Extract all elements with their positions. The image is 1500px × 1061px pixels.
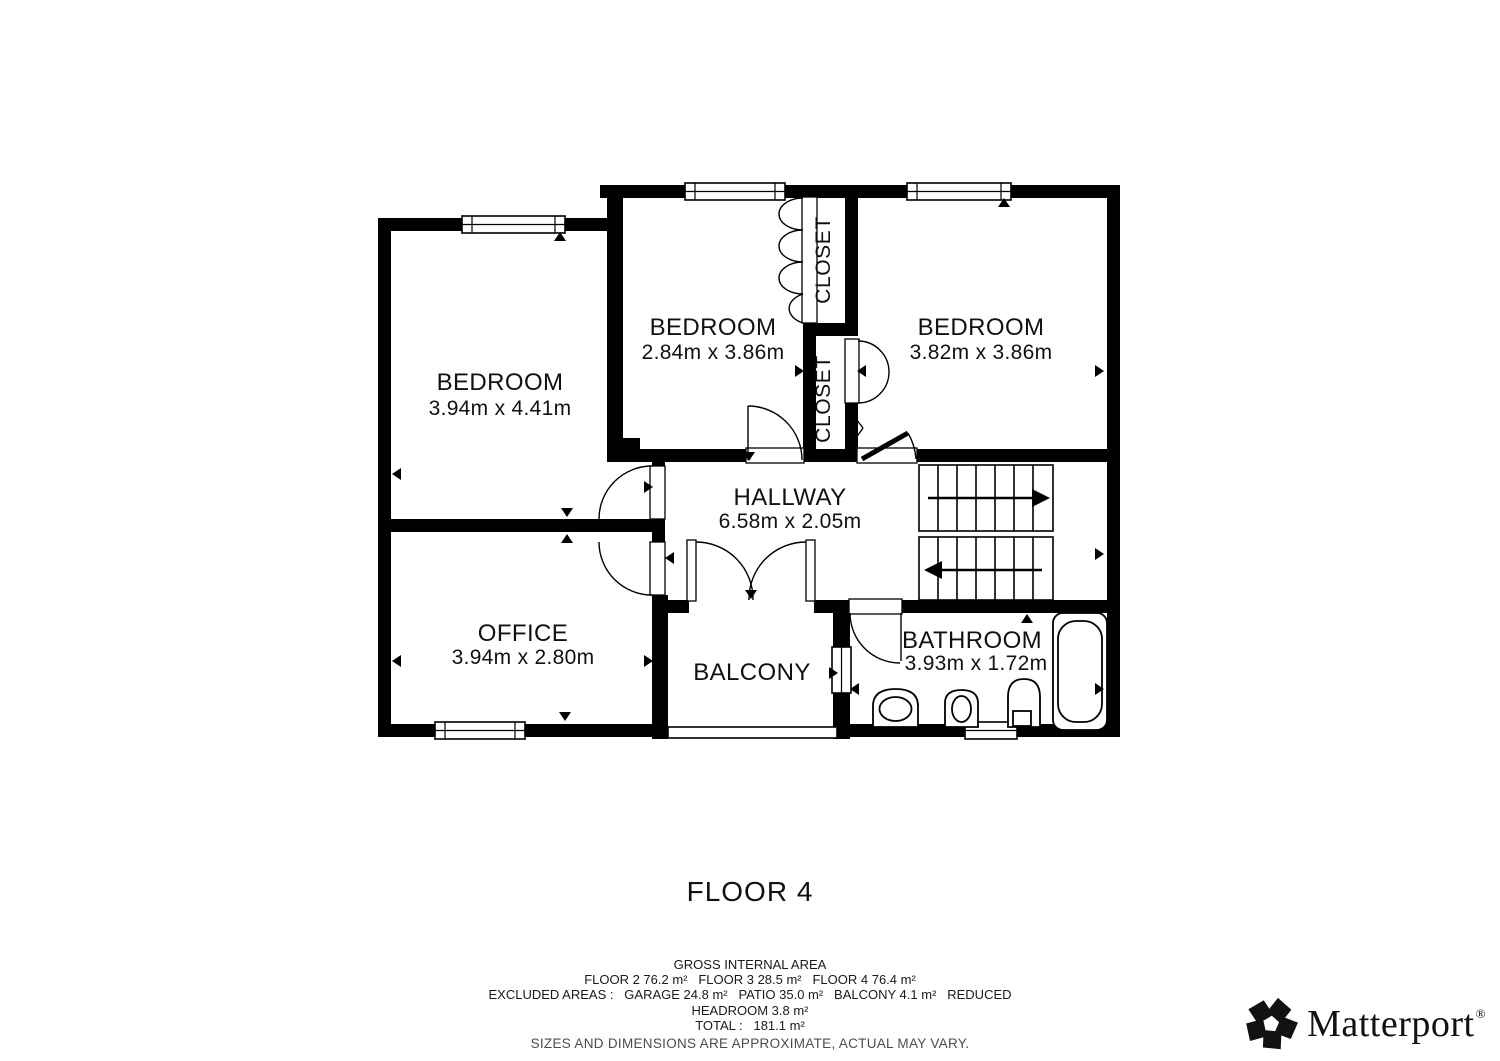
window xyxy=(907,183,1011,200)
room-dimensions: 3.82m x 3.86m xyxy=(910,341,1053,364)
closet-label: CLOSET xyxy=(812,216,835,304)
registered-trademark-symbol: ® xyxy=(1476,1006,1486,1021)
matterport-logo-icon xyxy=(1243,996,1299,1052)
floor-title: FLOOR 4 xyxy=(0,876,1500,908)
sink-icon xyxy=(945,690,978,727)
door xyxy=(849,599,902,663)
room-name: OFFICE xyxy=(478,620,568,647)
room-hallway: HALLWAY 6.58m x 2.05m xyxy=(719,484,862,533)
room-bedroom-right: BEDROOM 3.82m x 3.86m xyxy=(910,314,1053,364)
door xyxy=(599,542,665,595)
window xyxy=(462,216,565,233)
doors xyxy=(599,197,917,663)
closet-label: CLOSET xyxy=(812,355,835,443)
stairs-down-arrow xyxy=(924,561,1042,579)
room-dimensions: 3.94m x 2.80m xyxy=(452,646,595,669)
room-dimensions: 3.93m x 1.72m xyxy=(905,652,1048,675)
room-name: BEDROOM xyxy=(437,369,564,396)
staircase xyxy=(919,465,1053,600)
room-name: BEDROOM xyxy=(918,314,1045,341)
room-office: OFFICE 3.94m x 2.80m xyxy=(452,620,595,669)
closet-bottom: CLOSET xyxy=(812,355,835,443)
room-balcony: BALCONY xyxy=(693,659,811,686)
room-name: BEDROOM xyxy=(650,314,777,341)
window xyxy=(832,647,851,693)
room-name: BATHROOM xyxy=(902,627,1042,654)
matterport-logo: Matterport® xyxy=(1243,996,1486,1052)
stairs-up-arrow xyxy=(928,489,1050,507)
window xyxy=(685,183,785,200)
pedestal-sink-icon xyxy=(1008,679,1040,727)
floor-areas-line: FLOOR 2 76.2 m² FLOOR 3 28.5 m² FLOOR 4 … xyxy=(0,972,1500,987)
room-bathroom: BATHROOM 3.93m x 1.72m xyxy=(902,627,1047,675)
room-name: BALCONY xyxy=(693,659,811,686)
room-name: HALLWAY xyxy=(733,484,846,511)
door xyxy=(857,433,917,463)
room-bedroom-left: BEDROOM 3.94m x 4.41m xyxy=(429,369,572,420)
closet-top: CLOSET xyxy=(812,216,835,304)
room-bedroom-middle: BEDROOM 2.84m x 3.86m xyxy=(642,314,785,364)
gross-internal-area-heading: GROSS INTERNAL AREA xyxy=(0,957,1500,972)
balcony-railing xyxy=(668,727,837,738)
door xyxy=(746,406,804,463)
room-dimensions: 6.58m x 2.05m xyxy=(719,510,862,533)
room-dimensions: 3.94m x 4.41m xyxy=(429,397,572,420)
window xyxy=(435,722,525,739)
matterport-wordmark: Matterport® xyxy=(1307,1002,1486,1046)
bathtub-icon xyxy=(1053,613,1107,730)
door xyxy=(599,466,665,519)
room-dimensions: 2.84m x 3.86m xyxy=(642,341,785,364)
toilet-icon xyxy=(873,689,918,727)
